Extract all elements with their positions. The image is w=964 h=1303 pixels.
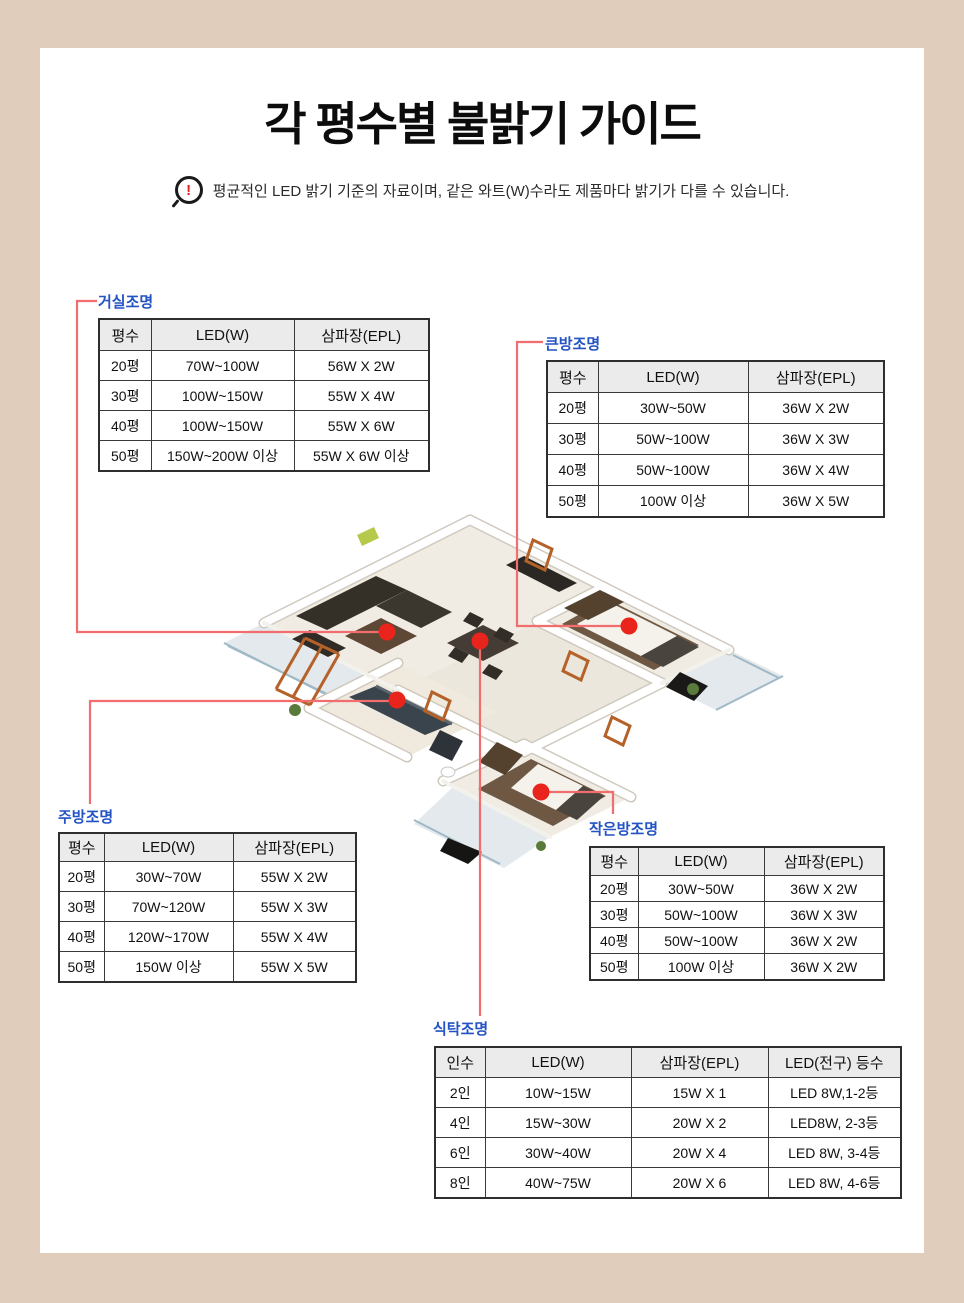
column-header: LED(W) [638,847,764,876]
table-cell: 20W X 4 [631,1138,768,1168]
table-cell: 2인 [435,1078,485,1108]
table-row: 50평100W 이상36W X 2W [590,954,884,981]
column-header: 평수 [590,847,638,876]
table-cell: 50평 [99,441,151,472]
kitchen-label: 주방조명 [58,806,113,827]
table-cell: LED 8W, 3-4등 [768,1138,901,1168]
table-cell: 40평 [99,411,151,441]
header-row: 평수LED(W)삼파장(EPL) [99,319,429,351]
dining-table-table: 인수LED(W)삼파장(EPL)LED(전구) 등수2인10W~15W15W X… [434,1046,902,1199]
table-cell: 36W X 2W [764,876,884,902]
table-cell: 55W X 3W [233,892,356,922]
plant [536,841,546,851]
small-room-label: 작은방조명 [589,818,658,839]
table-cell: 36W X 2W [748,393,884,424]
table-cell: 36W X 3W [748,424,884,455]
column-header: 평수 [547,361,598,393]
table-cell: 40W~75W [485,1168,631,1199]
table-cell: 36W X 4W [748,455,884,486]
table-row: 8인40W~75W20W X 6LED 8W, 4-6등 [435,1168,901,1199]
big-room-table: 평수LED(W)삼파장(EPL)20평30W~50W36W X 2W30평50W… [546,360,885,518]
column-header: LED(W) [485,1047,631,1078]
column-header: 삼파장(EPL) [631,1047,768,1078]
table-cell: 20평 [547,393,598,424]
table-row: 30평50W~100W36W X 3W [547,424,884,455]
table-cell: 30평 [590,902,638,928]
column-header: 평수 [99,319,151,351]
column-header: 삼파장(EPL) [233,833,356,862]
table-cell: 40평 [547,455,598,486]
table-cell: 50평 [59,952,104,983]
table-row: 50평150W~200W 이상55W X 6W 이상 [99,441,429,472]
table-cell: 50W~100W [598,424,748,455]
living-table: 평수LED(W)삼파장(EPL)20평70W~100W56W X 2W30평10… [98,318,430,472]
table-cell: 56W X 2W [294,351,429,381]
table-cell: 30W~50W [638,876,764,902]
table-cell: 40평 [590,928,638,954]
magnifier-alert-icon: ! [175,176,203,204]
table-cell: 20평 [590,876,638,902]
table-cell: 6인 [435,1138,485,1168]
header-row: 평수LED(W)삼파장(EPL) [590,847,884,876]
table-cell: 55W X 4W [233,922,356,952]
header-row: 인수LED(W)삼파장(EPL)LED(전구) 등수 [435,1047,901,1078]
table-cell: 30W~70W [104,862,233,892]
table-row: 30평70W~120W55W X 3W [59,892,356,922]
notice: ! 평균적인 LED 밝기 기준의 자료이며, 같은 와트(W)수라도 제품마다… [0,176,964,204]
table-cell: 100W 이상 [638,954,764,981]
table-row: 40평120W~170W55W X 4W [59,922,356,952]
table-cell: 30평 [99,381,151,411]
table-cell: 150W~200W 이상 [151,441,294,472]
kitchen-table: 평수LED(W)삼파장(EPL)20평30W~70W55W X 2W30평70W… [58,832,357,983]
table-cell: LED 8W, 4-6등 [768,1168,901,1199]
table-cell: 36W X 5W [748,486,884,518]
table-cell: 36W X 2W [764,928,884,954]
plant [289,704,301,716]
table-row: 6인30W~40W20W X 4LED 8W, 3-4등 [435,1138,901,1168]
table-cell: 100W~150W [151,411,294,441]
column-header: LED(W) [151,319,294,351]
wall-art [357,527,379,546]
dining-label: 식탁조명 [433,1018,488,1039]
header-row: 평수LED(W)삼파장(EPL) [59,833,356,862]
table-cell: 150W 이상 [104,952,233,983]
column-header: LED(W) [104,833,233,862]
table-cell: 30평 [59,892,104,922]
table-cell: 8인 [435,1168,485,1199]
header-row: 평수LED(W)삼파장(EPL) [547,361,884,393]
table-cell: 20평 [59,862,104,892]
table-cell: 50W~100W [638,928,764,954]
table-cell: 10W~15W [485,1078,631,1108]
table-cell: 55W X 6W [294,411,429,441]
table-row: 40평50W~100W36W X 4W [547,455,884,486]
column-header: LED(W) [598,361,748,393]
table-cell: 55W X 6W 이상 [294,441,429,472]
table-cell: 50W~100W [598,455,748,486]
table-cell: 40평 [59,922,104,952]
table-row: 20평30W~50W36W X 2W [590,876,884,902]
table-row: 20평30W~70W55W X 2W [59,862,356,892]
exclamation-glyph: ! [186,183,191,198]
table-row: 40평100W~150W55W X 6W [99,411,429,441]
table-cell: 50W~100W [638,902,764,928]
column-header: 인수 [435,1047,485,1078]
table-row: 20평30W~50W36W X 2W [547,393,884,424]
table-cell: 20W X 2 [631,1108,768,1138]
small-room-table: 평수LED(W)삼파장(EPL)20평30W~50W36W X 2W30평50W… [589,846,885,981]
column-header: 삼파장(EPL) [764,847,884,876]
table-cell: 55W X 5W [233,952,356,983]
table-cell: 70W~120W [104,892,233,922]
table-cell: 30W~50W [598,393,748,424]
table-cell: 30W~40W [485,1138,631,1168]
column-header: LED(전구) 등수 [768,1047,901,1078]
table-cell: 50평 [547,486,598,518]
table-cell: 55W X 2W [233,862,356,892]
table-row: 40평50W~100W36W X 2W [590,928,884,954]
table-cell: 15W~30W [485,1108,631,1138]
table-row: 2인10W~15W15W X 1LED 8W,1-2등 [435,1078,901,1108]
table-cell: 20W X 6 [631,1168,768,1199]
plant [687,683,699,695]
table-cell: 36W X 2W [764,954,884,981]
table-cell: 55W X 4W [294,381,429,411]
table-row: 30평50W~100W36W X 3W [590,902,884,928]
notice-text: 평균적인 LED 밝기 기준의 자료이며, 같은 와트(W)수라도 제품마다 밝… [213,180,790,201]
column-header: 삼파장(EPL) [294,319,429,351]
table-row: 4인15W~30W20W X 2LED8W, 2-3등 [435,1108,901,1138]
table-cell: 36W X 3W [764,902,884,928]
toilet [441,767,455,777]
column-header: 삼파장(EPL) [748,361,884,393]
table-row: 20평70W~100W56W X 2W [99,351,429,381]
big-room-label: 큰방조명 [545,333,600,354]
page-title: 각 평수별 불밝기 가이드 [0,88,964,154]
table-cell: 70W~100W [151,351,294,381]
table-row: 30평100W~150W55W X 4W [99,381,429,411]
table-cell: 120W~170W [104,922,233,952]
table-cell: LED8W, 2-3등 [768,1108,901,1138]
table-cell: 30평 [547,424,598,455]
table-cell: 4인 [435,1108,485,1138]
table-cell: 100W 이상 [598,486,748,518]
table-cell: 15W X 1 [631,1078,768,1108]
table-cell: LED 8W,1-2등 [768,1078,901,1108]
infographic-page: 각 평수별 불밝기 가이드 ! 평균적인 LED 밝기 기준의 자료이며, 같은… [0,0,964,1303]
column-header: 평수 [59,833,104,862]
table-cell: 20평 [99,351,151,381]
living-room-label: 거실조명 [98,291,153,312]
table-row: 50평100W 이상36W X 5W [547,486,884,518]
table-cell: 100W~150W [151,381,294,411]
table-row: 50평150W 이상55W X 5W [59,952,356,983]
table-cell: 50평 [590,954,638,981]
